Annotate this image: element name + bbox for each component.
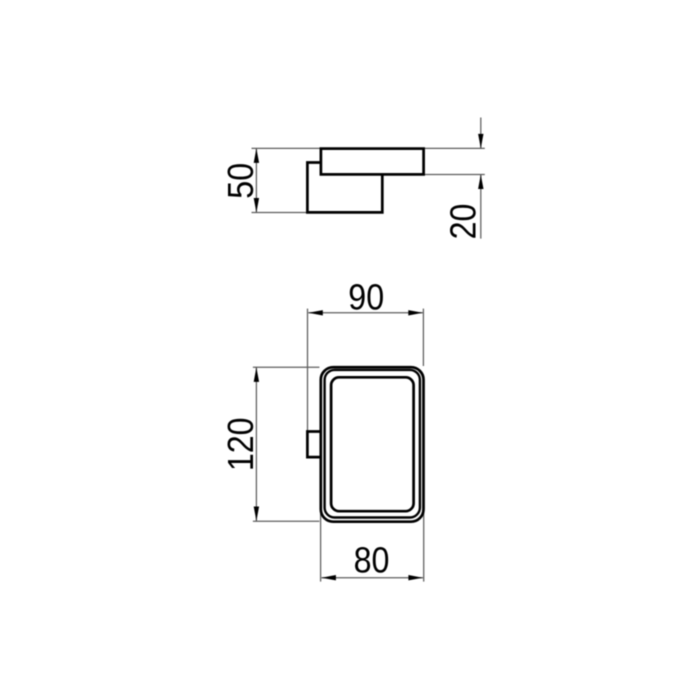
- svg-text:120: 120: [221, 417, 261, 471]
- svg-text:90: 90: [348, 278, 384, 318]
- svg-text:50: 50: [221, 163, 261, 199]
- svg-text:80: 80: [354, 541, 390, 581]
- svg-text:20: 20: [444, 204, 484, 240]
